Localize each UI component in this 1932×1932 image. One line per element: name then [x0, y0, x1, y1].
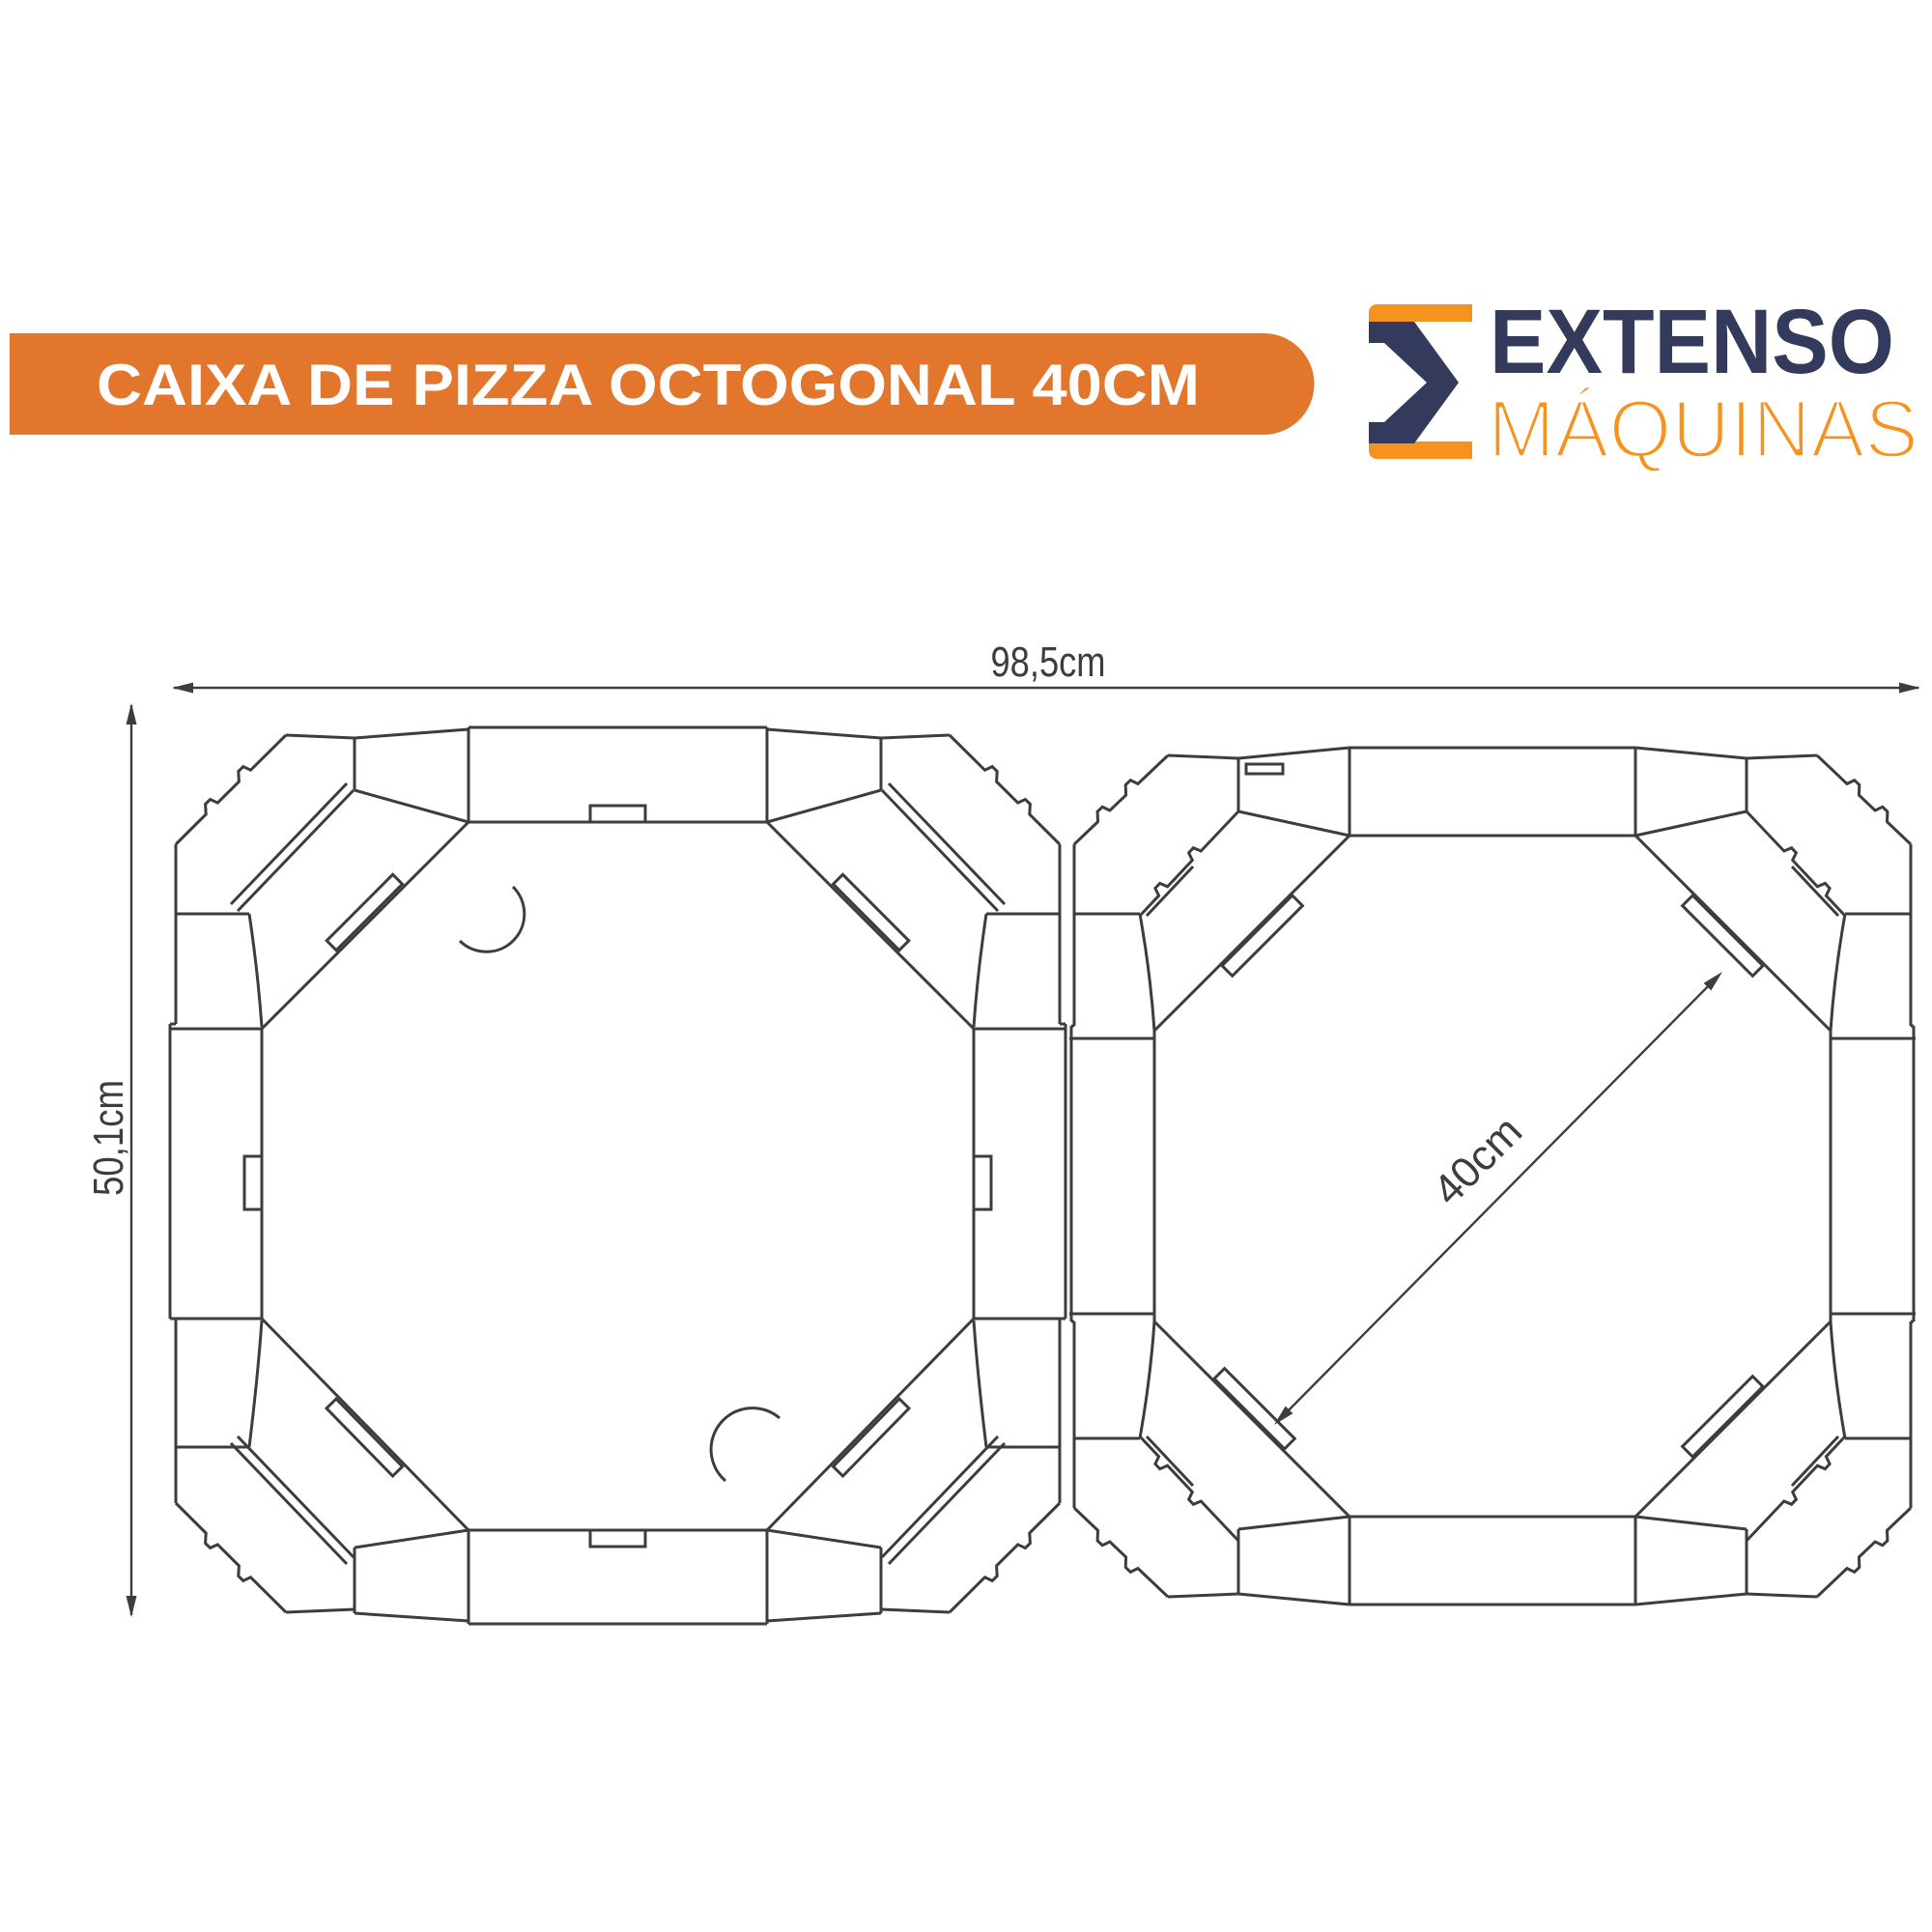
svg-text:50,1cm: 50,1cm [85, 1080, 132, 1196]
svg-text:98,5cm: 98,5cm [991, 639, 1106, 686]
svg-text:CAIXA DE PIZZA OCTOGONAL 40CM: CAIXA DE PIZZA OCTOGONAL 40CM [97, 353, 1200, 417]
svg-text:EXTENSO: EXTENSO [1490, 291, 1894, 393]
svg-text:MÁQUINAS: MÁQUINAS [1488, 384, 1918, 474]
